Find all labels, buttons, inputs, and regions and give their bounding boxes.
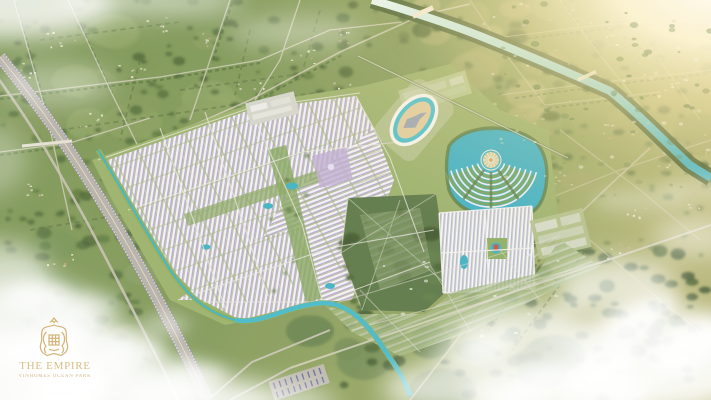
svg-text:Cac thong tin, hinh anh chi ma: Cac thong tin, hinh anh chi mang tinh ch… bbox=[5, 392, 134, 396]
svg-text:Hinh anh minh hoa duoc xay dun: Hinh anh minh hoa duoc xay dung tu du li… bbox=[5, 387, 208, 391]
svg-text:VINHOMES OCEAN PARK: VINHOMES OCEAN PARK bbox=[19, 374, 92, 379]
svg-text:THE EMPIRE: THE EMPIRE bbox=[19, 360, 90, 372]
